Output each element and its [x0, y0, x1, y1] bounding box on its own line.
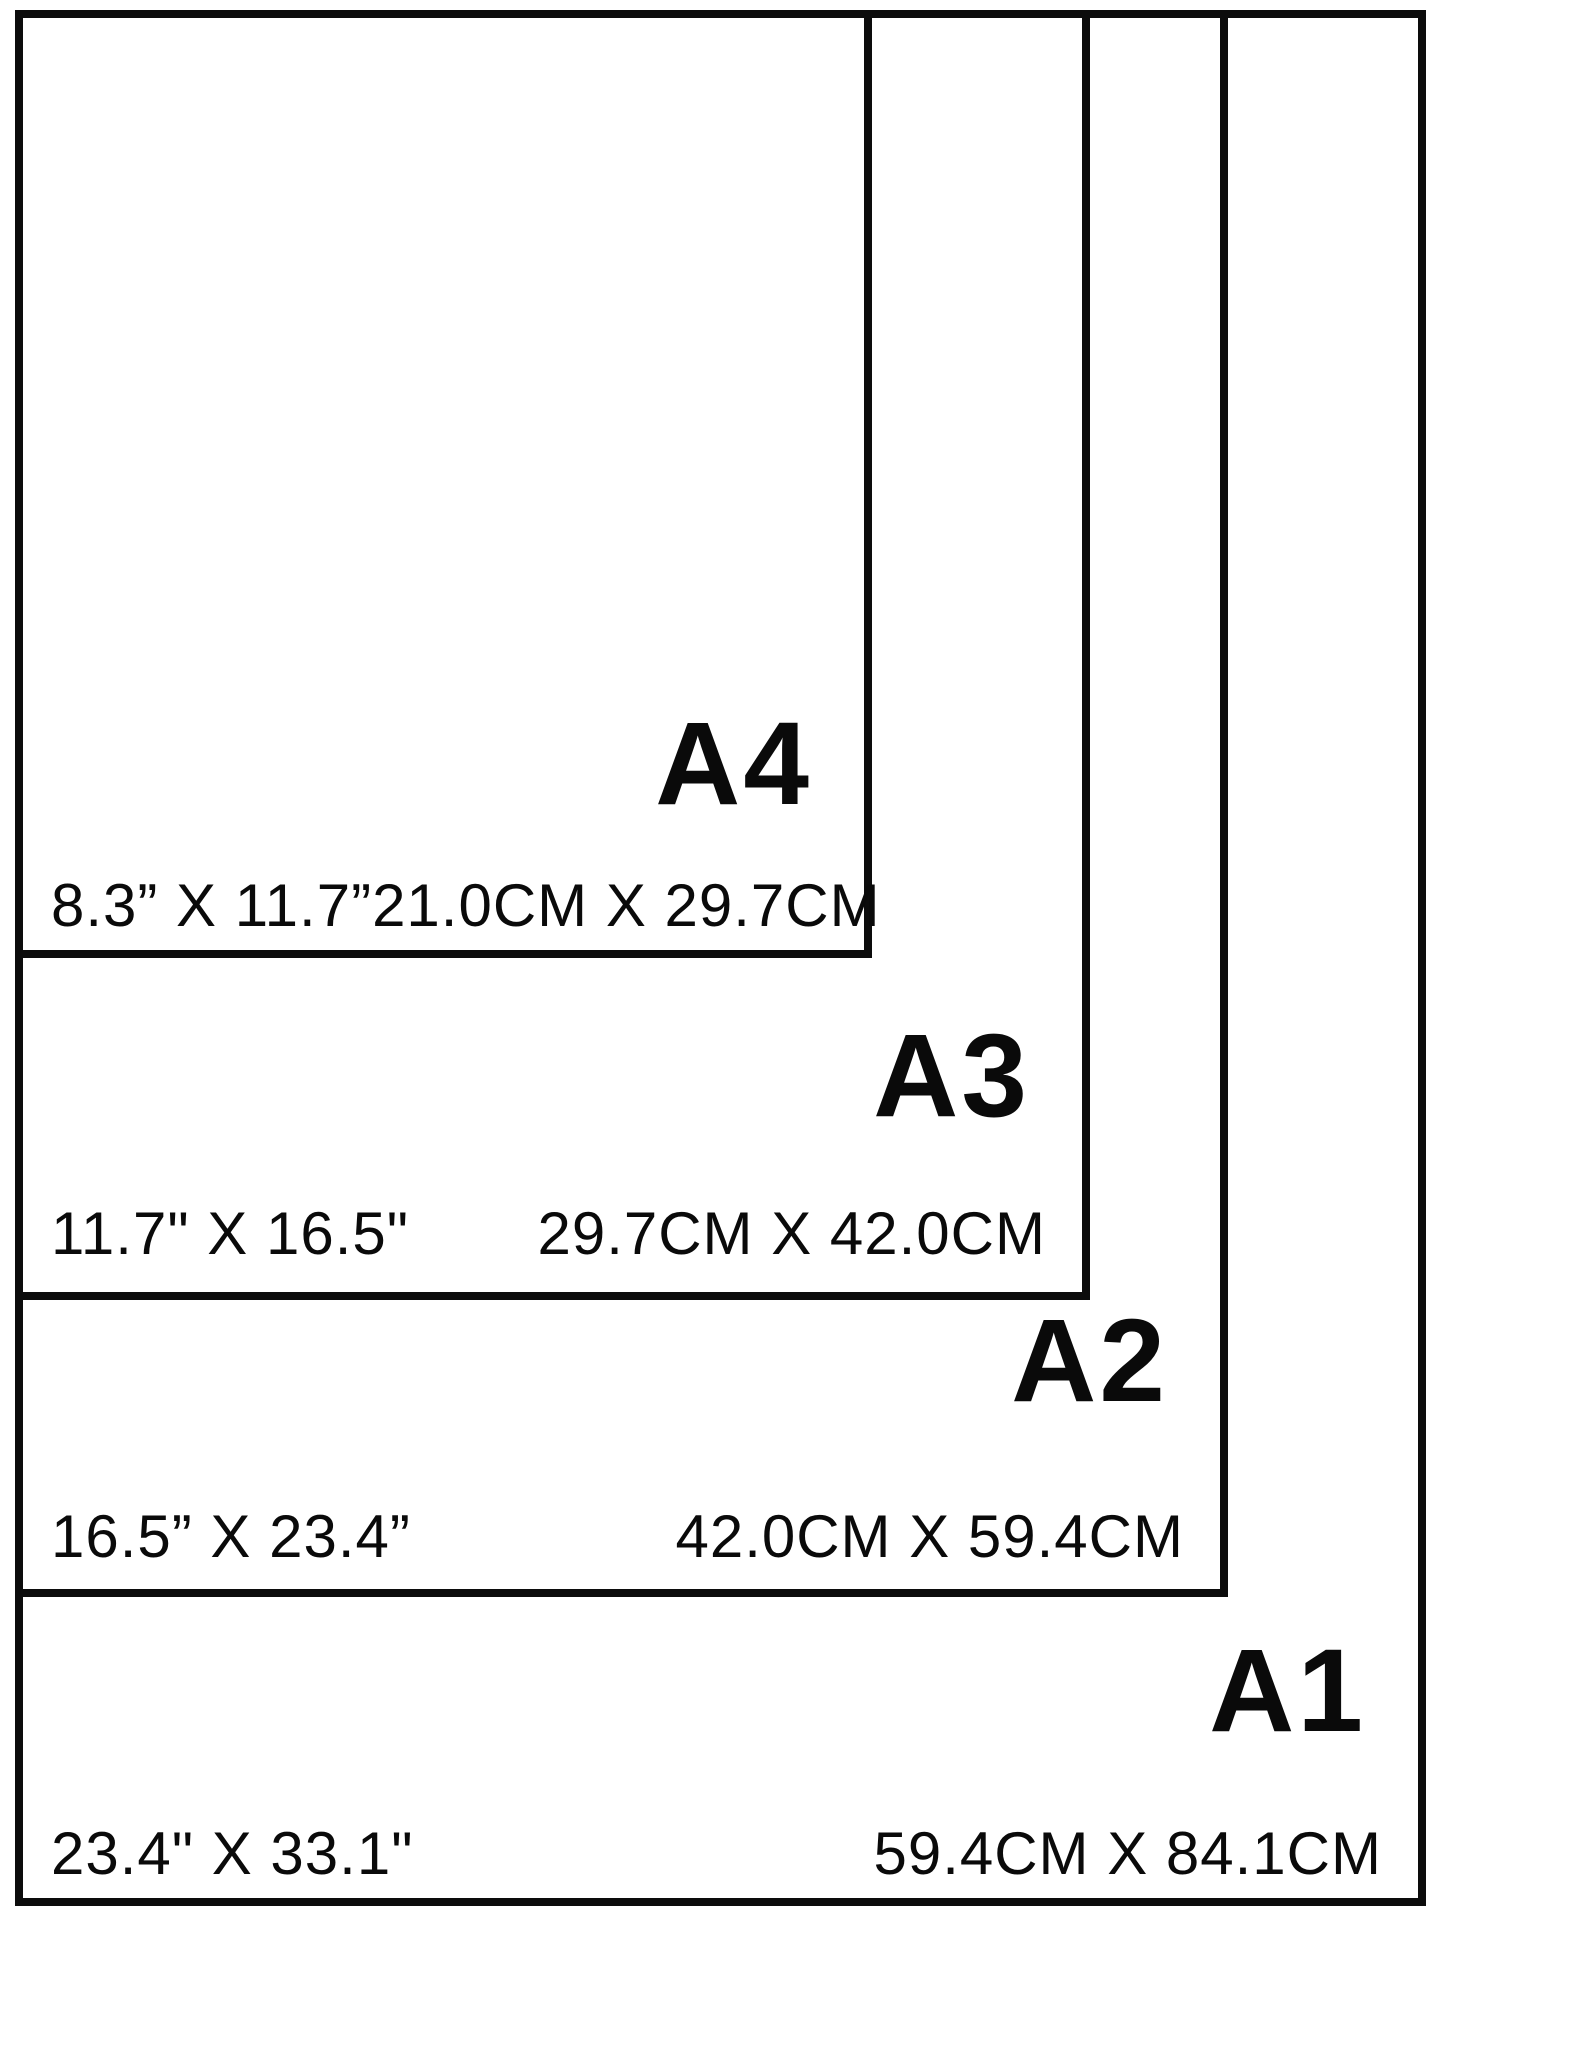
dims-row-a4: 8.3” X 11.7” 21.0CM X 29.7CM [51, 876, 828, 936]
paper-sizes-diagram: A1 23.4" X 33.1" 59.4CM X 84.1CM A2 16.5… [0, 0, 1573, 2048]
paper-rect-a4: A4 8.3” X 11.7” 21.0CM X 29.7CM [15, 10, 872, 958]
size-name-label-a2: A2 [1011, 1302, 1168, 1420]
dims-row-a1: 23.4" X 33.1" 59.4CM X 84.1CM [51, 1824, 1382, 1884]
dims-row-a2: 16.5” X 23.4” 42.0CM X 59.4CM [51, 1507, 1184, 1567]
inch-dimensions-a2: 16.5” X 23.4” [51, 1507, 411, 1567]
cm-dimensions-a1: 59.4CM X 84.1CM [873, 1824, 1382, 1884]
size-name-label-a3: A3 [873, 1017, 1030, 1135]
size-name-label-a1: A1 [1209, 1632, 1366, 1750]
cm-dimensions-a3: 29.7CM X 42.0CM [537, 1204, 1046, 1264]
inch-dimensions-a1: 23.4" X 33.1" [51, 1824, 414, 1884]
dims-row-a3: 11.7" X 16.5" 29.7CM X 42.0CM [51, 1204, 1046, 1264]
size-name-label-a4: A4 [655, 705, 812, 823]
inch-dimensions-a3: 11.7" X 16.5" [51, 1204, 409, 1264]
cm-dimensions-a4: 21.0CM X 29.7CM [372, 876, 881, 936]
inch-dimensions-a4: 8.3” X 11.7” [51, 876, 372, 936]
cm-dimensions-a2: 42.0CM X 59.4CM [675, 1507, 1184, 1567]
